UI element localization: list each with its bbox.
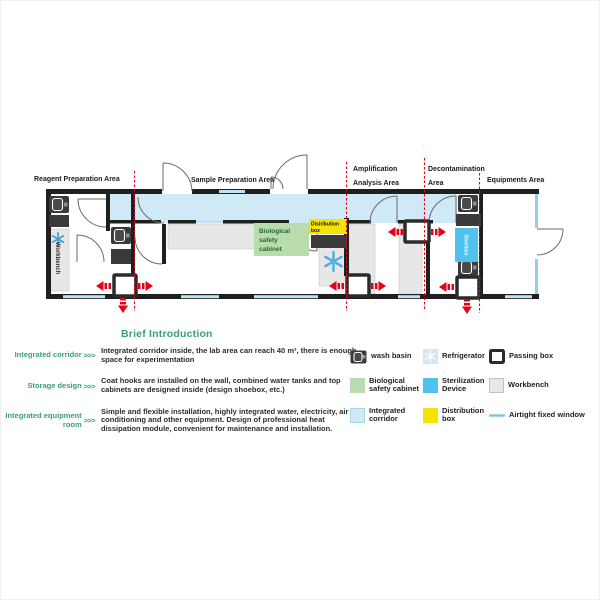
svg-text:Distribution: Distribution	[311, 222, 339, 228]
wash-basin-icon	[458, 195, 478, 212]
area-labels: Reagent Preparation Area Sample Preparat…	[34, 166, 544, 187]
legend-item-workbench: Workbench	[489, 377, 600, 394]
integrated-corridor	[109, 194, 457, 223]
wash-basin-icon	[350, 350, 367, 364]
intro-row-integrated-corridor: Integrated corridor >>> Integrated corri…	[1, 347, 357, 364]
distribution-box: Distribution box	[309, 219, 347, 248]
area-label-sample: Sample Preparation Area	[191, 177, 274, 184]
area-label-amplification-2: Analysis Area	[353, 180, 399, 187]
row-text: Coat hooks are installed on the wall, co…	[101, 377, 357, 394]
row-text: Simple and flexible installation, highly…	[101, 408, 357, 434]
legend-item-refrigerator: Refrigerator	[423, 349, 489, 364]
workbench-label: Workbench	[54, 242, 60, 275]
integrated-corridor-icon	[350, 408, 365, 423]
intro-row-storage-design: Storage design >>> Coat hooks are instal…	[1, 377, 357, 394]
row-label: Integrated corridor	[15, 351, 82, 360]
biological-safety-cabinet-icon	[350, 378, 365, 393]
area-label-decontamination-2: Area	[428, 180, 444, 187]
floor-plan: Biological safety cabinet Distribution b…	[1, 149, 600, 324]
svg-text:Sterilize: Sterilize	[463, 234, 469, 255]
row-text: Integrated corridor inside, the lab area…	[101, 347, 357, 364]
legend-item-sterilization-device: Sterilization Device	[423, 377, 489, 394]
brief-introduction-section: Brief Introduction Integrated corridor >…	[1, 328, 357, 434]
arrows-marker: >>>	[84, 416, 95, 425]
legend-item-distribution-box: Distribution box	[423, 407, 489, 424]
legend-item-biological-safety-cabinet: Biological safety cabinet	[350, 377, 423, 394]
area-label-equipments: Equipments Area	[487, 177, 544, 184]
passing-box-icon	[489, 349, 505, 364]
area-label-amplification-1: Amplification	[353, 166, 397, 173]
biological-safety-cabinet: Biological safety cabinet	[254, 223, 309, 256]
arrows-marker: >>>	[84, 351, 95, 360]
wash-basin-icon	[111, 227, 131, 244]
area-label-decontamination-1: Decontamination	[428, 166, 485, 173]
area-label-reagent: Reagent Preparation Area	[34, 176, 120, 183]
workbench-icon	[489, 378, 504, 393]
row-label: Storage design	[27, 382, 81, 391]
wash-basin-icon	[49, 196, 69, 213]
bio-cabinet-label: Biological	[259, 228, 290, 235]
intro-row-integrated-equipment-room: Integrated equipment room >>> Simple and…	[1, 408, 357, 434]
svg-text:cabinet: cabinet	[259, 246, 283, 253]
arrows-marker: >>>	[84, 382, 95, 391]
legend-item-wash-basin: wash basin	[350, 349, 423, 364]
sterilization-device: Sterilize	[455, 228, 478, 262]
distribution-box-icon	[423, 408, 438, 423]
section-title: Brief Introduction	[121, 328, 357, 340]
sterilization-device-icon	[423, 378, 438, 393]
legend-item-passing-box: Passing box	[489, 349, 600, 364]
refrigerator-icon	[423, 349, 438, 364]
legend: wash basin Refrigerator Passing box Biol…	[350, 349, 600, 424]
svg-text:safety: safety	[259, 237, 278, 244]
legend-item-airtight-fixed-window: Airtight fixed window	[489, 407, 600, 424]
row-label: Integrated equipment room	[1, 412, 82, 430]
lab-layout-infographic: Biological safety cabinet Distribution b…	[0, 0, 600, 600]
svg-text:box: box	[311, 228, 320, 234]
legend-item-integrated-corridor: Integrated corridor	[350, 407, 423, 424]
airtight-fixed-window-icon	[489, 408, 505, 423]
